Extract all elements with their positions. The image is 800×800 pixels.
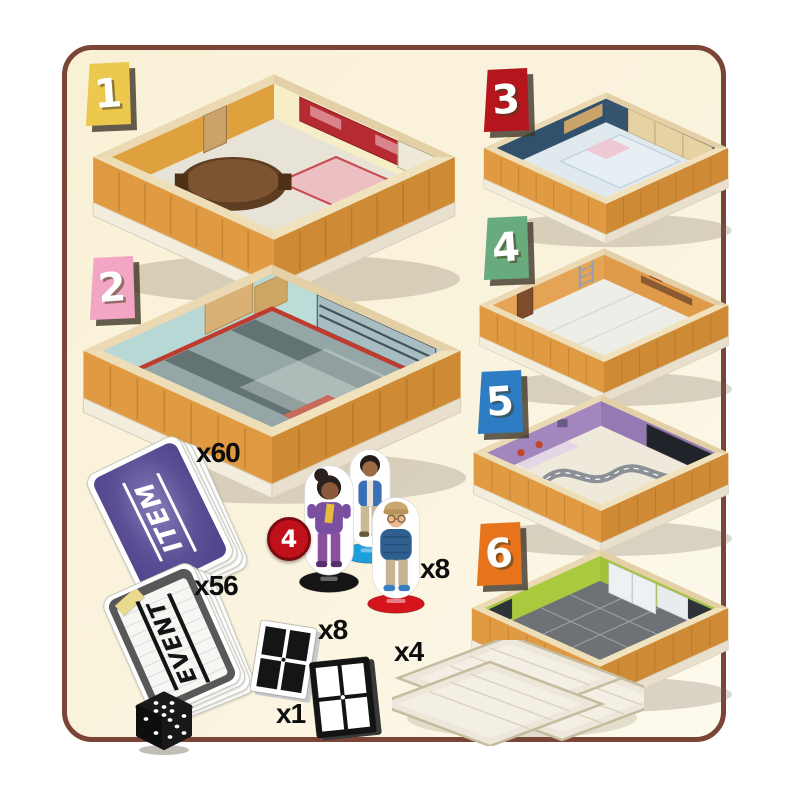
room-number-3: 3 <box>490 76 521 124</box>
black-die <box>132 690 196 756</box>
room-number-2: 2 <box>96 264 127 312</box>
room-number-5: 5 <box>484 378 515 426</box>
room-number-4: 4 <box>490 224 521 272</box>
components-illustration: 1 2 3 4 5 6 ITEM x60 <box>0 0 800 800</box>
floor-tile-tokens <box>392 640 644 746</box>
room-number-tag-6: 6 <box>475 522 522 586</box>
step-4-badge: 4 <box>267 517 311 561</box>
standees-count-label: x8 <box>420 553 449 585</box>
event-count-label: x56 <box>194 570 238 602</box>
room-number-6: 6 <box>483 530 514 578</box>
step-4-number: 4 <box>281 525 298 553</box>
room-number-1: 1 <box>92 70 123 118</box>
white-window-count-label: x8 <box>318 614 347 646</box>
room-number-tag-1: 1 <box>84 62 131 126</box>
item-card-label: ITEM <box>122 473 197 562</box>
item-count-label: x60 <box>196 437 240 469</box>
room-number-tag-3: 3 <box>482 68 529 132</box>
room-number-tag-4: 4 <box>482 216 529 280</box>
black-window-count-label: x1 <box>276 698 305 730</box>
room-number-tag-5: 5 <box>476 370 523 434</box>
floor-tiles-count-label: x4 <box>394 636 423 668</box>
black-window-token <box>308 654 384 744</box>
room-number-tag-2: 2 <box>88 256 135 320</box>
